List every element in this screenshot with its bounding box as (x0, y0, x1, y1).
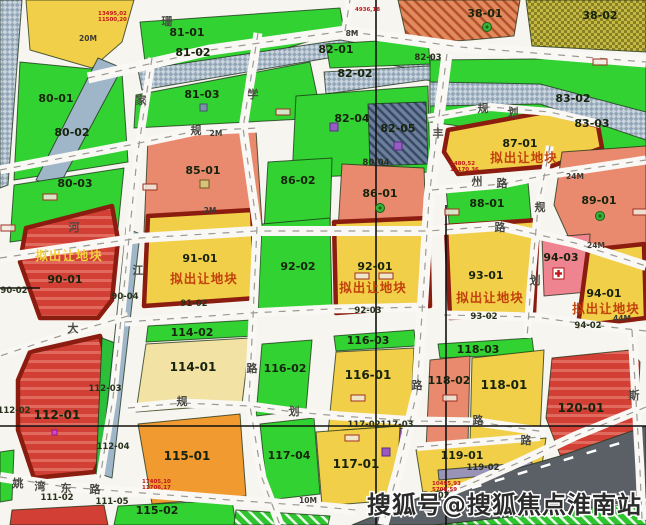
parcel-label-117-04: 117-04 (268, 449, 311, 462)
road-width-marker-2: 2M (210, 129, 223, 138)
annotation-stamp-3 (445, 209, 459, 215)
road-name-char-17: 规 (177, 394, 188, 408)
road-casing-10 (125, 307, 428, 322)
parcel-label-80-02: 80-02 (54, 126, 89, 139)
road-name-char-12: 江 (133, 263, 144, 277)
parcel-label-118-03: 118-03 (457, 343, 500, 356)
parcel-label-94-01: 94-01 (586, 287, 621, 300)
road-name-char-16: 路 (412, 378, 424, 392)
small-label-112-04: 112-04 (96, 442, 129, 452)
small-label-90-04: 90-04 (111, 292, 138, 302)
small-label-112-02: 112-02 (0, 406, 31, 416)
annotation-stamp-2 (43, 194, 57, 200)
parcel-118-02 (426, 356, 470, 450)
parcel-label-38-01: 38-01 (467, 7, 502, 20)
parcel-label-81-02: 81-02 (175, 46, 210, 59)
parcel-label-82-02: 82-02 (337, 67, 372, 80)
school-icon-82-05 (394, 142, 402, 150)
road-name-char-11: 河 (69, 220, 80, 234)
small-label-82-03: 82-03 (414, 53, 441, 63)
annotation-stamp-4 (633, 209, 646, 215)
parcel-label-112-01: 112-01 (34, 408, 81, 422)
parcel-label-118-01: 118-01 (481, 378, 528, 392)
road-width-marker-0: 20M (79, 34, 97, 43)
parcel-label-116-01: 116-01 (345, 368, 392, 382)
parcel-label-83-02: 83-02 (555, 92, 590, 105)
parcel-label-86-02: 86-02 (280, 174, 315, 187)
parcel-label-87-01: 87-01 (502, 137, 537, 150)
offer-label-91-01: 拟出让地块 (170, 271, 238, 286)
tree-icon-89-01-dot (599, 215, 602, 218)
parcel-label-93-01: 93-01 (468, 269, 503, 282)
annotation-stamp-1 (143, 184, 157, 190)
parcel-label-82-05: 82-05 (380, 122, 415, 135)
parcel-label-90-01: 90-01 (47, 273, 82, 286)
offer-label-90-01: 拟出让地块 (35, 248, 103, 263)
small-label-94-02: 94-02 (574, 321, 601, 331)
road-width-marker-3: 2M (204, 206, 217, 215)
road-width-marker-7: 10M (299, 496, 317, 505)
road-name-char-18: 划 (289, 404, 300, 418)
school-icon-85-01 (200, 180, 209, 188)
parcel-label-91-01: 91-01 (182, 252, 217, 265)
small-label-119-02: 119-02 (466, 463, 499, 473)
road-width-marker-1: 8M (346, 29, 359, 38)
road-name-char-7: 州 (471, 175, 483, 188)
parcel-label-120-01: 120-01 (558, 401, 605, 415)
road-name-char-0: 珊 (162, 15, 173, 28)
annotation-stamp-7 (1, 225, 15, 231)
road-name-char-23: 湾 (35, 479, 46, 493)
zoning-map: 80-0180-0280-0381-0181-0281-0382-0182-02… (0, 0, 646, 525)
school-icon-117-03 (382, 448, 390, 456)
road-width-marker-5: 24M (587, 241, 605, 250)
road-name-char-1: 家 (136, 93, 148, 107)
parcel-38-02 (526, 0, 646, 52)
parcel-label-114-01: 114-01 (170, 360, 217, 374)
road-name-char-2: 学 (248, 87, 259, 101)
road-name-char-20: 斯 (629, 388, 640, 402)
parcel-label-116-03: 116-03 (347, 334, 390, 347)
facility-icon-81-03 (200, 104, 207, 111)
parcel-label-92-02: 92-02 (280, 260, 315, 273)
parcel-blred (10, 505, 108, 525)
small-label-117-03: 117-03 (380, 420, 413, 430)
road-name-char-4: 丰 (433, 126, 444, 140)
annotation-stamp-0 (276, 109, 290, 115)
coord-stamp-1-line1: 4936,18 (355, 7, 380, 13)
parcel-label-92-01: 92-01 (357, 260, 392, 273)
road-name-char-6: 划 (508, 105, 519, 119)
road-name-char-22: 姚 (12, 476, 24, 490)
coord-stamp-2-line2: 11170,36 (450, 167, 479, 173)
parcel-label-38-02: 38-02 (582, 9, 617, 22)
annotation-stamp-6 (379, 273, 393, 279)
parcel-label-85-01: 85-01 (185, 164, 220, 177)
road-name-char-9: 规 (535, 200, 546, 214)
tree-icon-86-01-dot (379, 207, 382, 210)
road-name-char-10: 路 (495, 220, 507, 234)
annotation-stamp-5 (355, 273, 369, 279)
parcel-label-114-02: 114-02 (171, 326, 214, 339)
parcel-label-80-01: 80-01 (38, 92, 73, 105)
annotation-stamp-9 (351, 395, 365, 401)
parcel-label-81-01: 81-01 (169, 26, 204, 39)
annotation-stamp-8 (443, 395, 457, 401)
parcel-label-88-01: 88-01 (469, 197, 504, 210)
road-name-char-15: 路 (247, 361, 259, 375)
parcel-label-82-01: 82-01 (318, 43, 353, 56)
road-name-char-21: 路 (521, 433, 533, 447)
offer-label-87-01: 拟出让地块 (490, 150, 558, 165)
offer-label-93-01: 拟出让地块 (456, 290, 524, 305)
watermark-text: 搜狐号@搜狐焦点淮南站 (367, 491, 642, 519)
annotation-stamp-10 (345, 435, 359, 441)
small-label-111-05: 111-05 (95, 497, 128, 507)
road-name-char-8: 路 (497, 176, 509, 190)
parcel-label-82-04: 82-04 (334, 112, 370, 125)
parcel-label-89-01: 89-01 (581, 194, 616, 207)
parcel-label-118-02: 118-02 (428, 374, 471, 387)
small-label-91-02: 91-02 (180, 299, 207, 309)
road-name-char-5: 规 (478, 101, 489, 115)
parcel-label-116-02: 116-02 (264, 362, 307, 375)
small-label-112-03: 112-03 (88, 384, 121, 394)
parcel-label-81-03: 81-03 (184, 88, 219, 101)
parcel-label-94-03: 94-03 (543, 251, 578, 264)
road-width-marker-6: 44M (613, 314, 631, 323)
road-name-char-13: 划 (530, 273, 541, 287)
road-name-char-19: 路 (473, 413, 485, 427)
parcel-112-01 (18, 336, 110, 478)
annotation-stamp-11 (593, 59, 607, 65)
coord-stamp-3-line2: 11706,17 (142, 485, 171, 491)
road-name-char-25: 路 (90, 482, 102, 496)
coord-stamp-0-line2: 11500,20 (98, 17, 127, 23)
road-name-char-24: 东 (61, 481, 72, 495)
small-label-117-02: 117-02 (347, 420, 380, 430)
parcel-label-80-03: 80-03 (57, 177, 92, 190)
small-label-80-04: 80-04 (362, 158, 389, 168)
parcel-label-115-01: 115-01 (164, 449, 211, 463)
parcel-label-119-01: 119-01 (441, 449, 484, 462)
road-name-char-3: 规 (191, 123, 202, 137)
parcel-label-83-03: 83-03 (574, 117, 609, 130)
small-label-92-03: 92-03 (354, 306, 381, 316)
parcel-label-86-01: 86-01 (362, 187, 397, 200)
marker-icon-112-01 (52, 430, 57, 435)
offer-label-92-01: 拟出让地块 (339, 280, 407, 295)
small-label-90-02: 90-02 (0, 286, 27, 296)
parcel-label-117-01: 117-01 (333, 457, 380, 471)
tree-icon-38-01-dot (486, 26, 489, 29)
road-name-char-14: 大 (68, 321, 79, 335)
road-width-marker-4: 24M (566, 172, 584, 181)
parcel-label-115-02: 115-02 (136, 504, 179, 517)
small-label-93-02: 93-02 (470, 312, 497, 322)
